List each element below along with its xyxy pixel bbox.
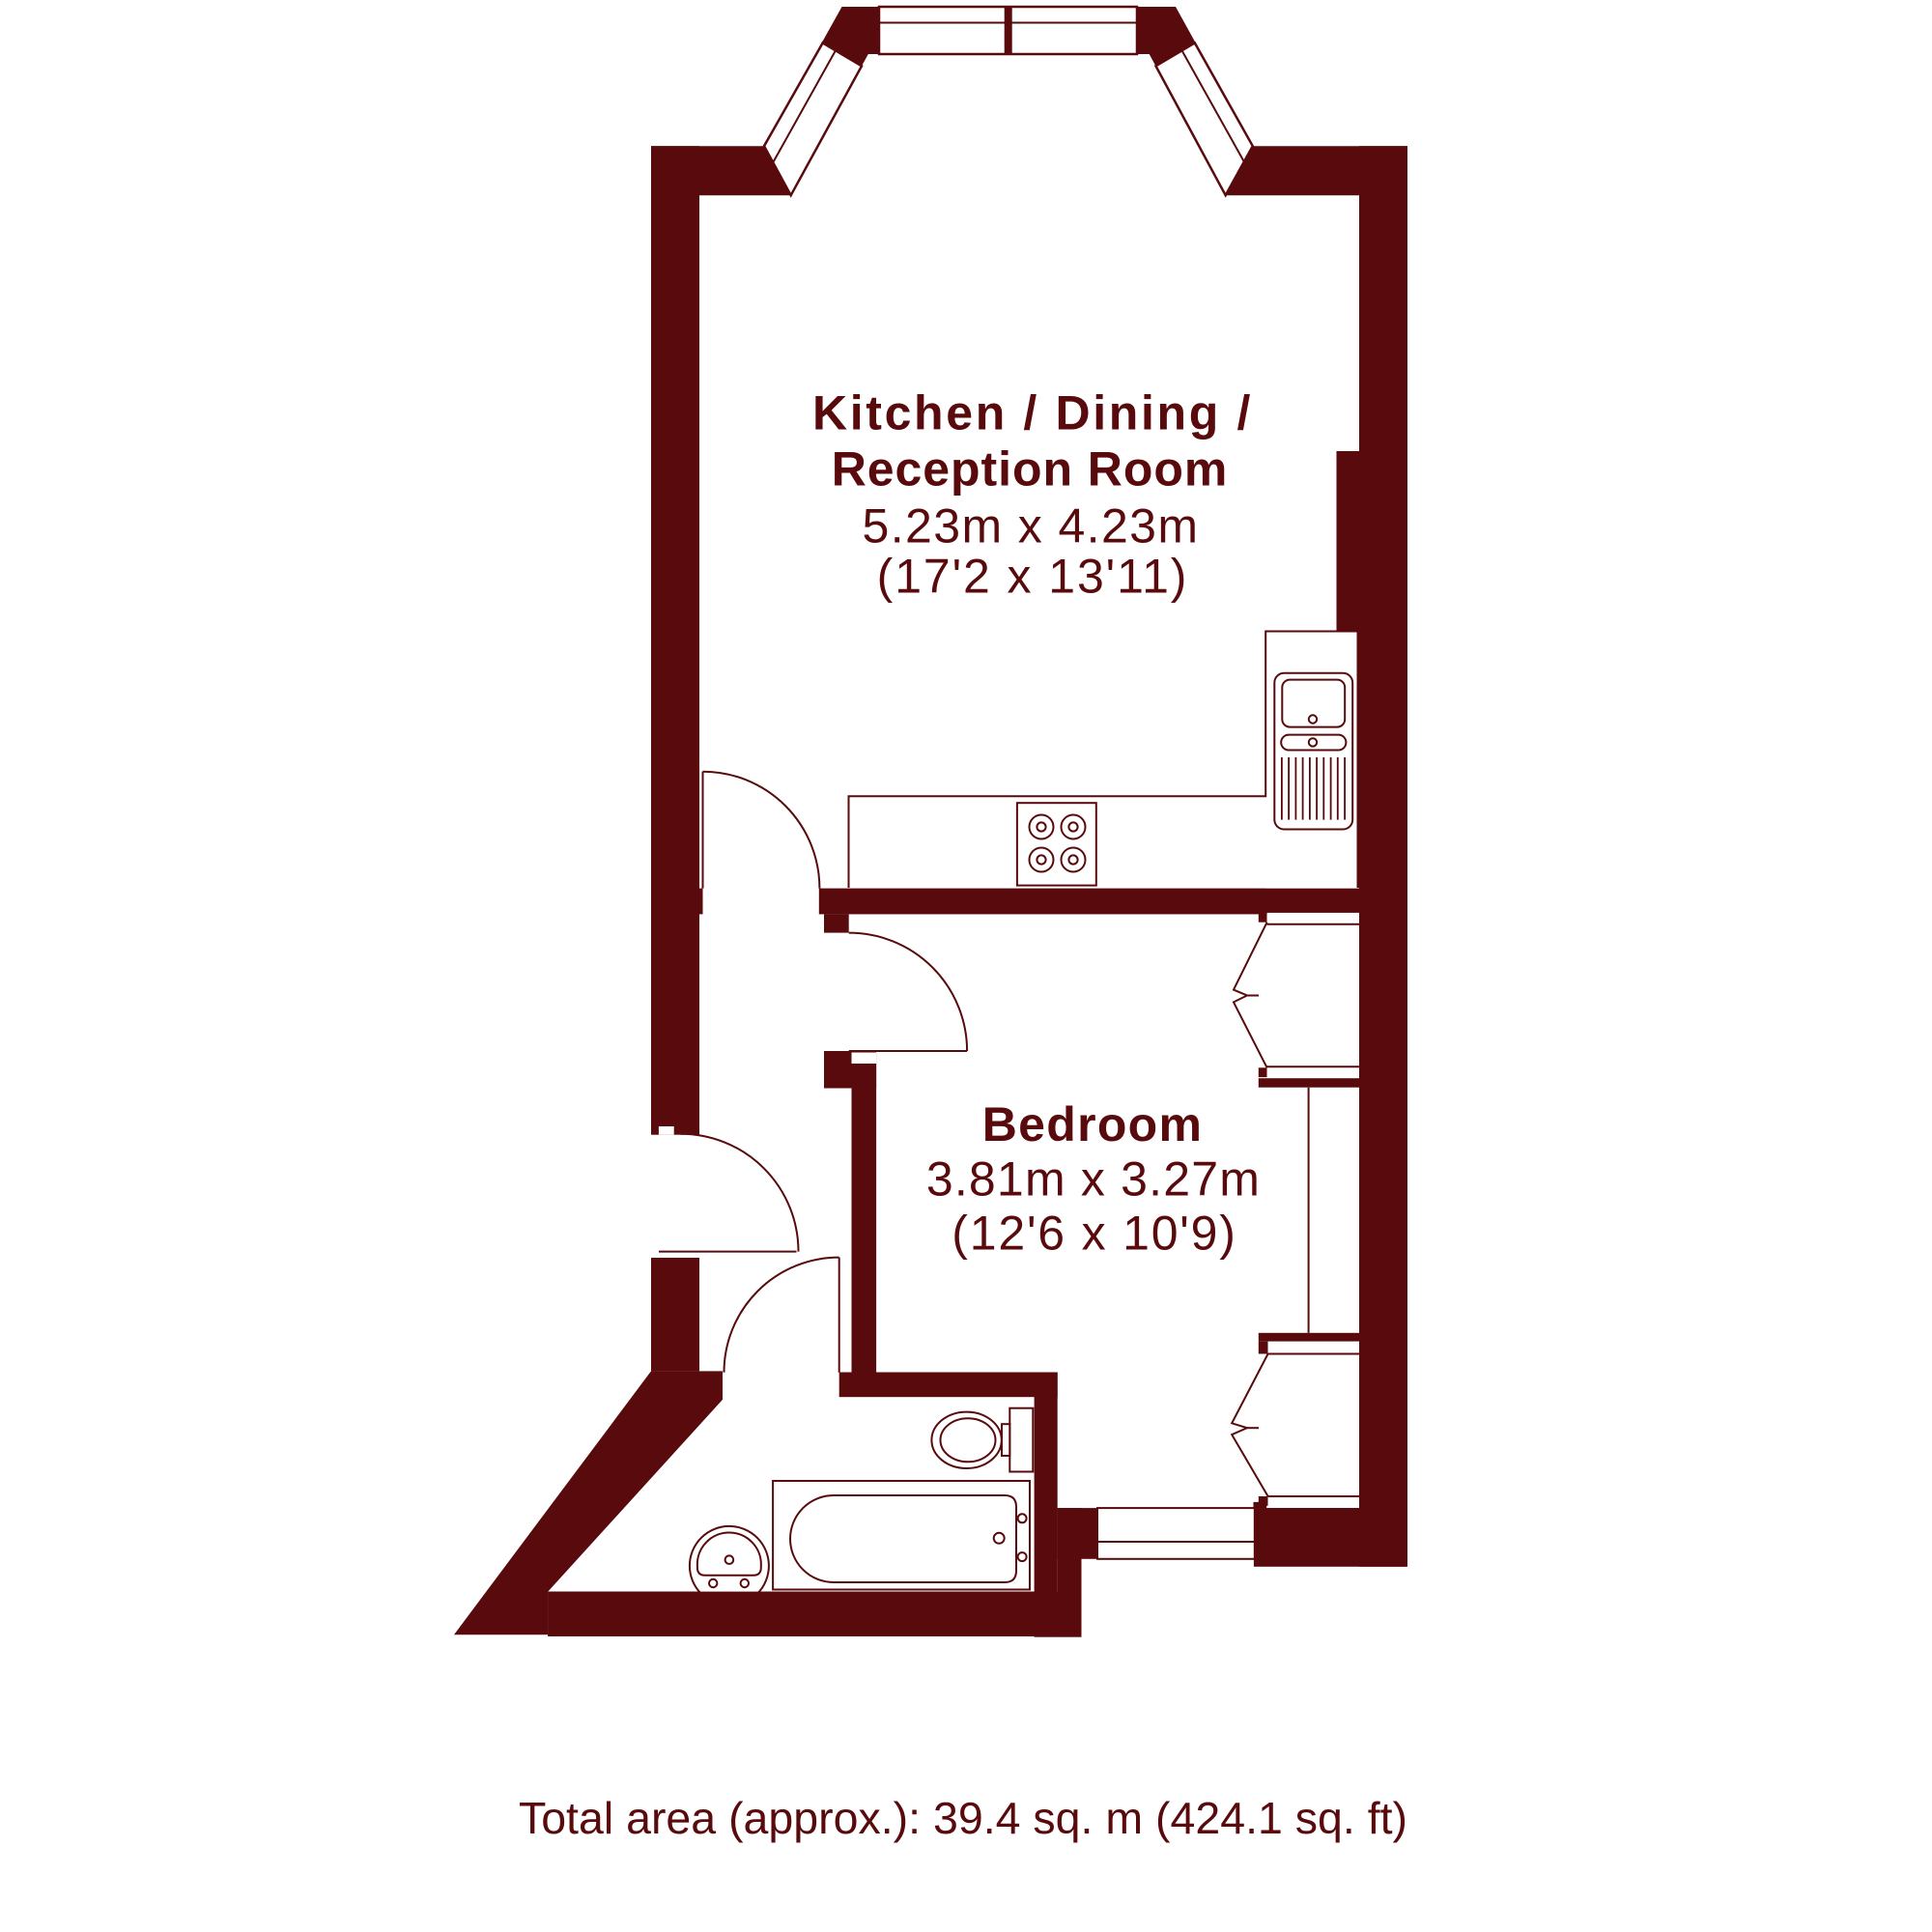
svg-text:Kitchen / Dining /: Kitchen / Dining /	[812, 386, 1253, 440]
svg-text:5.23m x 4.23m: 5.23m x 4.23m	[863, 499, 1200, 554]
svg-text:3.81m x 3.27m: 3.81m x 3.27m	[926, 1152, 1261, 1207]
svg-text:Total area (approx.): 39.4 sq.: Total area (approx.): 39.4 sq. m (424.1 …	[519, 1793, 1407, 1843]
svg-text:(12'6 x 10'9): (12'6 x 10'9)	[952, 1207, 1236, 1261]
svg-text:Bedroom: Bedroom	[982, 1097, 1204, 1151]
svg-text:(17'2 x 13'11): (17'2 x 13'11)	[877, 550, 1189, 604]
svg-text:Reception Room: Reception Room	[832, 442, 1229, 497]
